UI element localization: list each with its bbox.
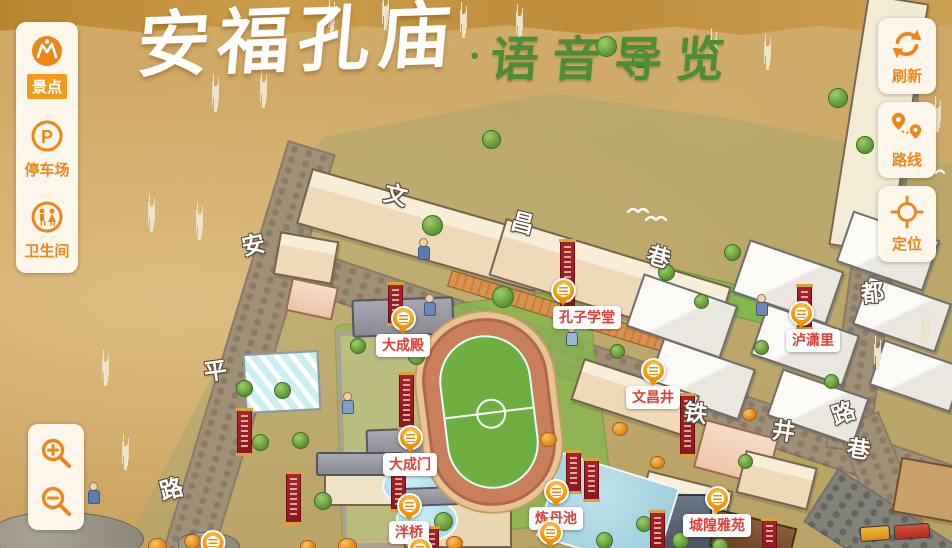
tool-label: 定位 (892, 233, 922, 254)
title-main: 安福孔庙 (134, 0, 462, 85)
poi-kongzixuetang[interactable]: 孔子学堂 (529, 278, 597, 329)
audio-marker-icon[interactable] (641, 358, 666, 383)
restroom-icon (28, 198, 66, 236)
building-brown (892, 457, 952, 523)
street-char: 巷 (846, 437, 872, 463)
tool-label: 路线 (892, 149, 922, 170)
audio-marker-icon[interactable] (201, 530, 226, 548)
voice-guide-map-app: 安 平 路 文 昌 巷 铁 井 巷 都 路 大成殿 孔子学堂 泸潇里 文昌井 大… (0, 0, 952, 548)
sidebar-item-label: 景点 (27, 74, 67, 99)
sidebar-item-parking[interactable]: P 停车场 (16, 117, 78, 180)
street-char: 安 (240, 232, 267, 259)
birds-icon (624, 202, 670, 228)
locate-icon (890, 195, 924, 229)
refresh-icon (890, 27, 924, 61)
red-car (894, 523, 931, 540)
scenic-icon (28, 32, 66, 70)
category-panel: 景点 P 停车场 卫生间 (16, 22, 78, 273)
poi-dachengmen[interactable]: 大成门 (383, 425, 437, 476)
route-button[interactable]: 路线 (878, 102, 936, 178)
poi-luxiaoli[interactable]: 泸潇里 (774, 301, 828, 352)
tool-label: 刷新 (892, 65, 922, 86)
refresh-button[interactable]: 刷新 (878, 18, 936, 94)
zoom-in-icon (38, 435, 74, 471)
street-char: 都 (860, 281, 885, 306)
title-dot: · (468, 32, 481, 79)
poi-dachengdian[interactable]: 大成殿 (376, 306, 430, 357)
audio-marker-icon[interactable] (789, 301, 814, 326)
locate-button[interactable]: 定位 (878, 186, 936, 262)
page-title: 安福孔庙 · 语音导览 (138, 4, 739, 90)
street-char: 平 (203, 359, 229, 385)
sidebar-item-label: 卫生间 (24, 240, 69, 261)
audio-marker-icon[interactable] (398, 425, 423, 450)
poi-label[interactable]: 孔子学堂 (553, 306, 621, 329)
poi-label[interactable]: 泸潇里 (786, 329, 840, 352)
sidebar-item-restroom[interactable]: 卫生间 (16, 198, 78, 261)
sidebar-item-label: 停车场 (24, 159, 69, 180)
poi-marker-cut[interactable] (408, 537, 433, 548)
audio-marker-icon[interactable] (391, 306, 416, 331)
poi-marker-cut[interactable] (201, 530, 226, 548)
yellow-car (860, 525, 891, 542)
audio-marker-icon[interactable] (551, 278, 576, 303)
audio-marker-icon[interactable] (544, 479, 569, 504)
zoom-out-icon (38, 483, 74, 519)
zoom-in-button[interactable] (38, 435, 74, 471)
audio-marker-icon[interactable] (408, 537, 433, 548)
parking-icon: P (28, 117, 66, 155)
zoom-out-button[interactable] (38, 483, 74, 519)
audio-marker-icon[interactable] (397, 493, 422, 518)
zoom-controls (28, 424, 84, 530)
street-char: 铁 (683, 401, 709, 427)
poi-zhuangyuanqiao[interactable]: 状元桥 (523, 520, 577, 548)
poi-wenchangjing[interactable]: 文昌井 (626, 358, 680, 409)
route-icon (890, 111, 924, 145)
sidebar-item-scenic[interactable]: 景点 (16, 32, 78, 99)
audio-marker-icon[interactable] (705, 486, 730, 511)
svg-text:P: P (41, 127, 53, 147)
street-char: 井 (771, 419, 797, 445)
audio-marker-icon[interactable] (538, 520, 563, 545)
poi-chenghuangyayuan[interactable]: 城隍雅苑 (683, 486, 751, 537)
title-sub: 语音导览 (488, 20, 742, 90)
